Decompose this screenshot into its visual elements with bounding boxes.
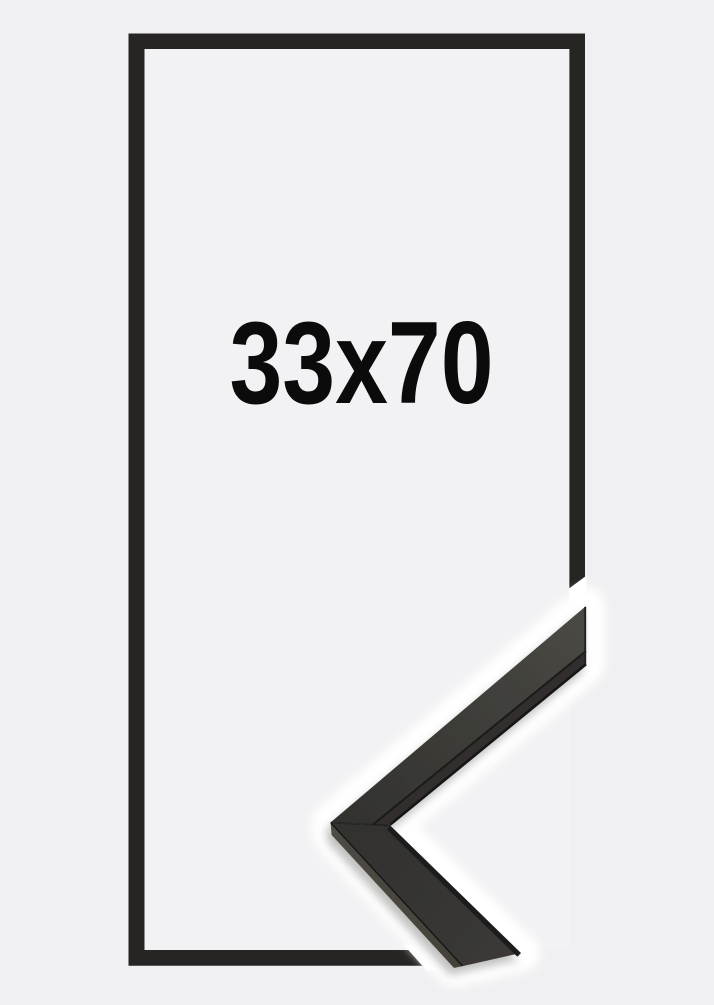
svg-text:33x70: 33x70 [230, 297, 494, 428]
